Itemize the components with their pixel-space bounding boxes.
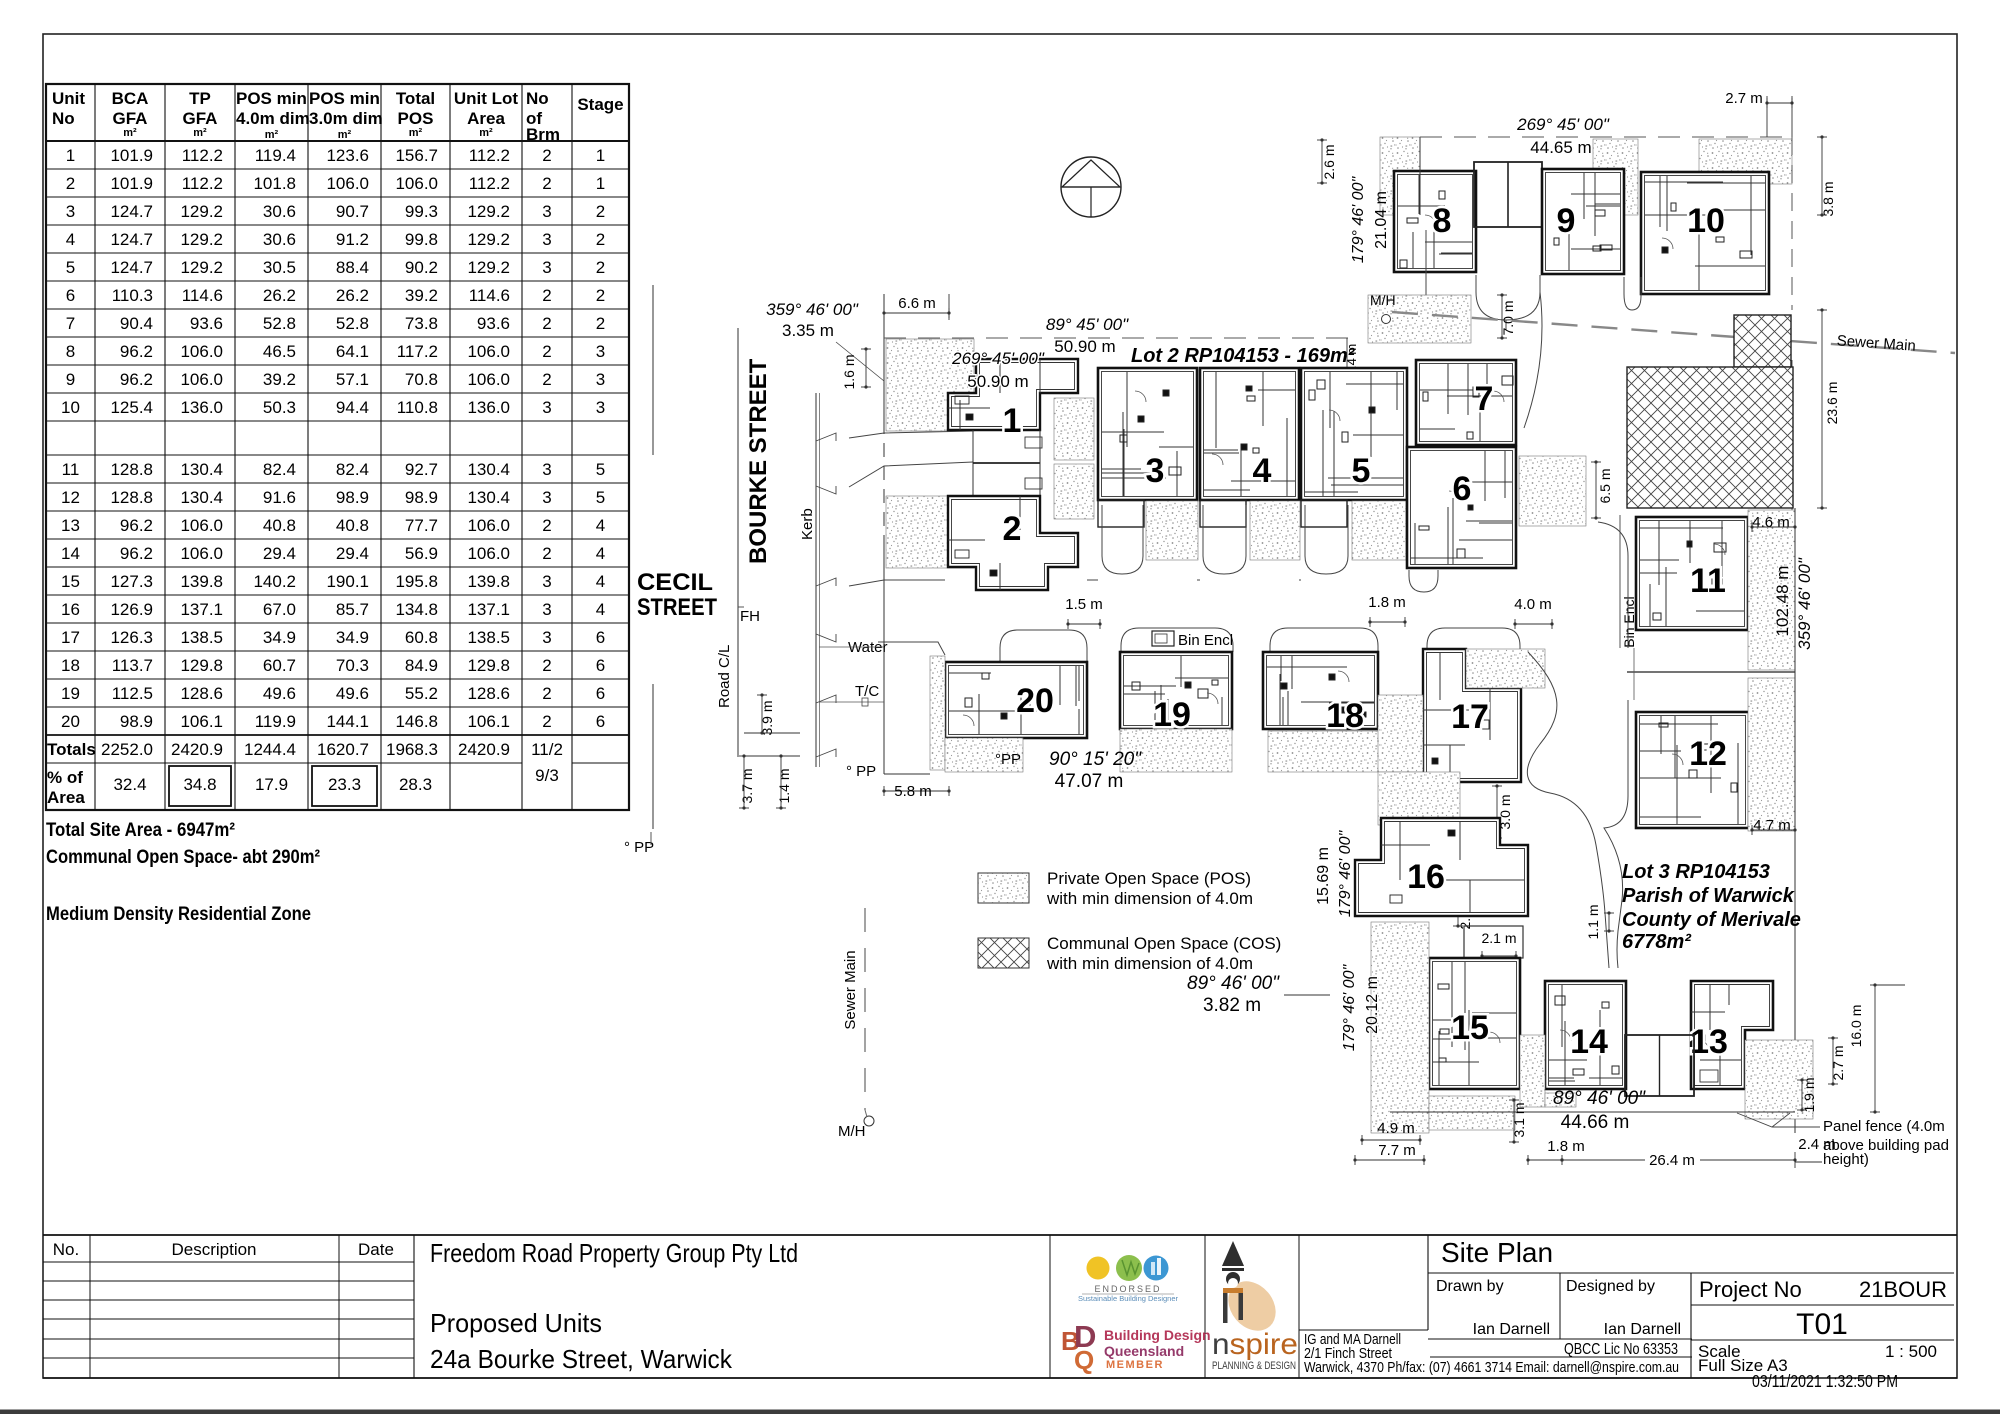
svg-text:93.6: 93.6 <box>477 314 510 333</box>
svg-text:190.1: 190.1 <box>326 572 369 591</box>
svg-text:° PP: ° PP <box>624 839 654 856</box>
svg-text:1.9 m: 1.9 m <box>1801 1077 1817 1112</box>
svg-text:13: 13 <box>61 516 80 535</box>
svg-text:QBCC Lic No 63353: QBCC Lic No 63353 <box>1564 1341 1678 1358</box>
svg-text:1.1 m: 1.1 m <box>1585 904 1601 939</box>
svg-text:with min dimension of 4.0m: with min dimension of 4.0m <box>1046 954 1253 973</box>
svg-text:26.2: 26.2 <box>336 286 369 305</box>
svg-text:101.9: 101.9 <box>110 146 153 165</box>
svg-text:14: 14 <box>1570 1023 1608 1061</box>
svg-text:° PP: ° PP <box>846 763 876 780</box>
svg-text:2: 2 <box>596 202 605 221</box>
svg-text:STREET: STREET <box>637 594 717 621</box>
svg-text:20: 20 <box>1016 682 1054 720</box>
svg-text:No: No <box>52 109 75 128</box>
svg-text:Road C/L: Road C/L <box>716 645 733 708</box>
svg-text:56.9: 56.9 <box>405 544 438 563</box>
svg-text:139.8: 139.8 <box>180 572 223 591</box>
svg-text:2: 2 <box>542 314 551 333</box>
svg-text:03/11/2021 1:32:50 PM: 03/11/2021 1:32:50 PM <box>1752 1371 1898 1391</box>
svg-text:Drawn by: Drawn by <box>1436 1278 1504 1295</box>
svg-text:5: 5 <box>596 460 605 479</box>
svg-text:128.6: 128.6 <box>467 684 510 703</box>
svg-text:67.0: 67.0 <box>263 600 296 619</box>
svg-text:2: 2 <box>596 286 605 305</box>
svg-text:126.3: 126.3 <box>110 628 153 647</box>
svg-text:21BOUR: 21BOUR <box>1859 1277 1947 1302</box>
svg-text:128.8: 128.8 <box>110 488 153 507</box>
svg-text:3.82 m: 3.82 m <box>1203 995 1261 1016</box>
svg-text:50.90 m: 50.90 m <box>967 372 1028 391</box>
svg-text:29.4: 29.4 <box>336 544 369 563</box>
svg-text:1 : 500: 1 : 500 <box>1885 1342 1937 1361</box>
svg-text:30.6: 30.6 <box>263 202 296 221</box>
svg-text:1: 1 <box>66 146 75 165</box>
svg-text:129.8: 129.8 <box>467 656 510 675</box>
svg-text:90.4: 90.4 <box>120 314 153 333</box>
svg-text:156.7: 156.7 <box>395 146 438 165</box>
svg-text:2.7 m: 2.7 m <box>1830 1045 1846 1080</box>
svg-text:60.7: 60.7 <box>263 656 296 675</box>
svg-text:90.2: 90.2 <box>405 258 438 277</box>
svg-text:4: 4 <box>596 544 605 563</box>
svg-text:3: 3 <box>542 600 551 619</box>
svg-text:Site Plan: Site Plan <box>1441 1237 1553 1268</box>
svg-text:98.9: 98.9 <box>405 488 438 507</box>
svg-text:3: 3 <box>542 258 551 277</box>
svg-text:138.5: 138.5 <box>467 628 510 647</box>
svg-text:3: 3 <box>542 488 551 507</box>
svg-text:16: 16 <box>61 600 80 619</box>
svg-text:23.6 m: 23.6 m <box>1824 382 1840 425</box>
svg-text:4.6 m: 4.6 m <box>1752 514 1790 531</box>
svg-text:Kerb: Kerb <box>799 508 816 540</box>
svg-text:m²: m² <box>338 129 352 141</box>
svg-text:Stage: Stage <box>577 95 623 114</box>
svg-text:30.5: 30.5 <box>263 258 296 277</box>
svg-text:40.8: 40.8 <box>336 516 369 535</box>
svg-text:2: 2 <box>66 174 75 193</box>
svg-text:32.4: 32.4 <box>113 775 146 794</box>
svg-text:77.7: 77.7 <box>405 516 438 535</box>
svg-text:269° 45' 00": 269° 45' 00" <box>1516 115 1610 134</box>
svg-text:129.2: 129.2 <box>180 202 223 221</box>
svg-text:m²: m² <box>123 127 137 139</box>
svg-text:2: 2 <box>542 174 551 193</box>
svg-text:nspire: nspire <box>1212 1328 1298 1361</box>
svg-text:106.0: 106.0 <box>326 174 369 193</box>
svg-text:Medium Density Residential Zon: Medium Density Residential Zone <box>46 904 311 925</box>
svg-text:Area: Area <box>47 788 85 807</box>
svg-text:7: 7 <box>66 314 75 333</box>
svg-text:Ian Darnell: Ian Darnell <box>1473 1321 1550 1338</box>
svg-text:55.2: 55.2 <box>405 684 438 703</box>
svg-text:3.1 m: 3.1 m <box>1511 1102 1527 1137</box>
svg-text:M/H: M/H <box>838 1123 866 1140</box>
svg-text:4: 4 <box>596 600 605 619</box>
svg-text:125.4: 125.4 <box>110 398 153 417</box>
svg-text:34.9: 34.9 <box>263 628 296 647</box>
svg-text:89° 46' 00": 89° 46' 00" <box>1187 973 1280 994</box>
svg-text:Lot 2 RP104153 - 169m²: Lot 2 RP104153 - 169m² <box>1131 345 1356 367</box>
svg-text:3: 3 <box>596 370 605 389</box>
svg-text:2: 2 <box>596 314 605 333</box>
svg-text:3.35 m: 3.35 m <box>782 321 834 340</box>
svg-text:Total: Total <box>396 89 435 108</box>
svg-text:3: 3 <box>596 342 605 361</box>
svg-text:91.6: 91.6 <box>263 488 296 507</box>
svg-text:128.8: 128.8 <box>110 460 153 479</box>
svg-text:106.0: 106.0 <box>395 174 438 193</box>
svg-text:96.2: 96.2 <box>120 516 153 535</box>
svg-text:2420.9: 2420.9 <box>458 740 510 759</box>
svg-text:4.7 m: 4.7 m <box>1753 817 1791 834</box>
svg-text:10: 10 <box>1687 202 1725 240</box>
svg-text:106.1: 106.1 <box>180 712 223 731</box>
svg-text:7: 7 <box>1475 380 1494 418</box>
svg-text:82.4: 82.4 <box>263 460 296 479</box>
svg-text:4.0m dim: 4.0m dim <box>236 109 310 128</box>
svg-text:% of: % of <box>47 768 83 787</box>
svg-text:16.0 m: 16.0 m <box>1848 1005 1864 1048</box>
svg-text:106.0: 106.0 <box>467 342 510 361</box>
svg-text:90° 15' 20": 90° 15' 20" <box>1049 749 1142 770</box>
svg-text:3: 3 <box>542 230 551 249</box>
svg-text:47.07 m: 47.07 m <box>1055 771 1124 792</box>
svg-text:6: 6 <box>596 684 605 703</box>
svg-text:98.9: 98.9 <box>120 712 153 731</box>
svg-text:44.65 m: 44.65 m <box>1530 138 1591 157</box>
svg-text:T/C: T/C <box>855 683 879 700</box>
svg-text:130.4: 130.4 <box>467 460 510 479</box>
svg-text:39.2: 39.2 <box>263 370 296 389</box>
svg-text:44.66 m: 44.66 m <box>1561 1112 1630 1133</box>
svg-text:2.6 m: 2.6 m <box>1321 144 1337 179</box>
svg-text:195.8: 195.8 <box>395 572 438 591</box>
svg-text:17.9: 17.9 <box>255 775 288 794</box>
svg-text:°PP: °PP <box>995 751 1021 768</box>
svg-text:5: 5 <box>1352 452 1371 490</box>
svg-text:6: 6 <box>66 286 75 305</box>
svg-text:96.2: 96.2 <box>120 342 153 361</box>
svg-text:1.4 m: 1.4 m <box>776 768 792 803</box>
svg-text:99.3: 99.3 <box>405 202 438 221</box>
svg-text:9: 9 <box>66 370 75 389</box>
svg-text:93.6: 93.6 <box>190 314 223 333</box>
svg-text:106.0: 106.0 <box>180 544 223 563</box>
svg-text:123.6: 123.6 <box>326 146 369 165</box>
svg-text:88.4: 88.4 <box>336 258 369 277</box>
svg-text:Parish of Warwick: Parish of Warwick <box>1622 885 1795 907</box>
svg-text:Description: Description <box>171 1240 256 1259</box>
svg-text:13: 13 <box>1690 1023 1728 1061</box>
svg-text:126.9: 126.9 <box>110 600 153 619</box>
svg-text:99.8: 99.8 <box>405 230 438 249</box>
svg-text:112.2: 112.2 <box>182 174 223 193</box>
svg-text:130.4: 130.4 <box>180 460 223 479</box>
svg-text:60.8: 60.8 <box>405 628 438 647</box>
svg-text:m²: m² <box>265 129 279 141</box>
svg-text:24a Bourke Street, Warwick: 24a Bourke Street, Warwick <box>430 1344 733 1374</box>
svg-text:7.7 m: 7.7 m <box>1378 1142 1416 1159</box>
svg-text:21.04 m: 21.04 m <box>1373 191 1390 249</box>
svg-text:3: 3 <box>66 202 75 221</box>
svg-text:FH: FH <box>740 608 760 625</box>
svg-text:106.0: 106.0 <box>180 342 223 361</box>
svg-text:89° 45' 00": 89° 45' 00" <box>1046 315 1129 334</box>
svg-text:1: 1 <box>596 146 605 165</box>
svg-text:136.0: 136.0 <box>467 398 510 417</box>
svg-text:101.8: 101.8 <box>253 174 296 193</box>
svg-text:50.3: 50.3 <box>263 398 296 417</box>
svg-text:136.0: 136.0 <box>180 398 223 417</box>
svg-text:23.3: 23.3 <box>328 775 361 794</box>
svg-text:Unit: Unit <box>52 89 85 108</box>
svg-text:3: 3 <box>542 398 551 417</box>
svg-text:91.2: 91.2 <box>336 230 369 249</box>
svg-text:Bin Encl: Bin Encl <box>1621 596 1637 647</box>
svg-text:9: 9 <box>1557 202 1576 240</box>
svg-text:4: 4 <box>596 516 605 535</box>
svg-text:8: 8 <box>1433 202 1452 240</box>
svg-text:with min dimension of 4.0m: with min dimension of 4.0m <box>1046 889 1253 908</box>
svg-text:3.0m dim: 3.0m dim <box>309 109 383 128</box>
svg-text:3: 3 <box>542 628 551 647</box>
svg-text:96.2: 96.2 <box>120 370 153 389</box>
svg-text:Brm: Brm <box>526 125 560 144</box>
svg-text:M/H: M/H <box>1370 292 1396 308</box>
svg-text:3: 3 <box>1146 452 1165 490</box>
svg-text:89° 46' 00": 89° 46' 00" <box>1553 1088 1646 1109</box>
svg-text:No: No <box>526 89 549 108</box>
svg-text:1.5 m: 1.5 m <box>1065 596 1103 613</box>
svg-text:POS min: POS min <box>236 89 307 108</box>
svg-text:Private Open Space (POS): Private Open Space (POS) <box>1047 869 1251 888</box>
svg-text:110.8: 110.8 <box>397 398 438 417</box>
svg-text:98.9: 98.9 <box>336 488 369 507</box>
svg-text:4.9 m: 4.9 m <box>1377 1120 1415 1137</box>
svg-text:19: 19 <box>61 684 80 703</box>
svg-text:3: 3 <box>542 202 551 221</box>
svg-text:2: 2 <box>596 258 605 277</box>
svg-text:82.4: 82.4 <box>336 460 369 479</box>
svg-text:TP: TP <box>189 89 211 108</box>
svg-text:Building Design: Building Design <box>1104 1327 1211 1343</box>
svg-text:Ian Darnell: Ian Darnell <box>1604 1321 1681 1338</box>
svg-text:18: 18 <box>61 656 80 675</box>
svg-text:5: 5 <box>596 488 605 507</box>
svg-text:1244.4: 1244.4 <box>244 740 296 759</box>
svg-text:2: 2 <box>542 342 551 361</box>
svg-text:110.3: 110.3 <box>112 286 153 305</box>
svg-text:112.2: 112.2 <box>469 146 510 165</box>
svg-text:92.7: 92.7 <box>405 460 438 479</box>
svg-text:128.6: 128.6 <box>180 684 223 703</box>
svg-text:Water: Water <box>848 639 887 656</box>
svg-text:129.2: 129.2 <box>467 258 510 277</box>
svg-text:3: 3 <box>542 460 551 479</box>
svg-text:137.1: 137.1 <box>467 600 510 619</box>
svg-text:96.2: 96.2 <box>120 544 153 563</box>
svg-text:Panel fence (4.0m: Panel fence (4.0m <box>1823 1118 1945 1135</box>
svg-text:T01: T01 <box>1796 1308 1848 1341</box>
svg-text:15: 15 <box>61 572 80 591</box>
svg-text:Totals: Totals <box>47 740 96 759</box>
svg-text:BOURKE STREET: BOURKE STREET <box>745 358 772 564</box>
svg-text:2: 2 <box>542 656 551 675</box>
svg-text:129.2: 129.2 <box>467 230 510 249</box>
svg-text:Warwick, 4370 Ph/fax: (07) 4: Warwick, 4370 Ph/fax: (07) 4661 3714 Ema… <box>1304 1359 1679 1376</box>
svg-text:4: 4 <box>1253 452 1272 490</box>
svg-text:6.5 m: 6.5 m <box>1597 468 1613 503</box>
svg-text:POS min: POS min <box>309 89 380 108</box>
svg-text:1.8 m: 1.8 m <box>1368 594 1406 611</box>
svg-text:90.7: 90.7 <box>336 202 369 221</box>
svg-text:113.7: 113.7 <box>112 656 153 675</box>
svg-text:134.8: 134.8 <box>395 600 438 619</box>
svg-text:ENDORSED: ENDORSED <box>1094 1284 1161 1294</box>
svg-text:129.2: 129.2 <box>180 258 223 277</box>
svg-text:85.7: 85.7 <box>336 600 369 619</box>
svg-text:2252.0: 2252.0 <box>101 740 153 759</box>
svg-text:GFA: GFA <box>113 109 148 128</box>
svg-text:101.9: 101.9 <box>110 174 153 193</box>
svg-text:11: 11 <box>62 460 80 479</box>
svg-text:179° 46' 00": 179° 46' 00" <box>1341 964 1358 1052</box>
svg-text:137.1: 137.1 <box>180 600 223 619</box>
svg-text:m²: m² <box>479 127 493 139</box>
svg-text:11: 11 <box>1690 562 1726 600</box>
svg-text:height): height) <box>1823 1151 1869 1168</box>
svg-text:3: 3 <box>542 572 551 591</box>
svg-text:Lot 3 RP104153: Lot 3 RP104153 <box>1622 861 1770 883</box>
svg-text:4.0 m: 4.0 m <box>1514 596 1552 613</box>
svg-text:16: 16 <box>1407 858 1445 896</box>
svg-text:6: 6 <box>596 628 605 647</box>
svg-text:POS: POS <box>398 109 434 128</box>
svg-text:114.6: 114.6 <box>469 286 510 305</box>
svg-text:Proposed Units: Proposed Units <box>430 1308 602 1338</box>
svg-text:BCA: BCA <box>112 89 149 108</box>
svg-text:12: 12 <box>61 488 80 507</box>
svg-text:40.8: 40.8 <box>263 516 296 535</box>
svg-text:140.2: 140.2 <box>253 572 296 591</box>
svg-text:49.6: 49.6 <box>263 684 296 703</box>
svg-text:2420.9: 2420.9 <box>171 740 223 759</box>
svg-text:1.8 m: 1.8 m <box>1547 1138 1585 1155</box>
svg-text:5: 5 <box>66 258 75 277</box>
svg-text:20: 20 <box>61 712 80 731</box>
svg-text:Q: Q <box>1074 1345 1094 1375</box>
svg-text:146.8: 146.8 <box>395 712 438 731</box>
svg-text:130.4: 130.4 <box>180 488 223 507</box>
svg-text:11/2: 11/2 <box>531 740 563 759</box>
svg-text:52.8: 52.8 <box>263 314 296 333</box>
svg-text:138.5: 138.5 <box>180 628 223 647</box>
svg-text:34.8: 34.8 <box>183 775 216 794</box>
svg-text:CECIL: CECIL <box>637 569 713 596</box>
svg-text:4: 4 <box>596 572 605 591</box>
svg-text:70.8: 70.8 <box>405 370 438 389</box>
svg-text:50.90 m: 50.90 m <box>1054 337 1115 356</box>
svg-text:26.2: 26.2 <box>263 286 296 305</box>
svg-text:15: 15 <box>1451 1009 1489 1047</box>
svg-text:124.7: 124.7 <box>110 230 153 249</box>
svg-text:359° 46' 00": 359° 46' 00" <box>1795 557 1814 650</box>
svg-text:2: 2 <box>542 544 551 563</box>
svg-text:29.4: 29.4 <box>263 544 296 563</box>
svg-text:Queensland: Queensland <box>1104 1343 1184 1359</box>
svg-text:Unit Lot: Unit Lot <box>454 89 519 108</box>
svg-text:49.6: 49.6 <box>336 684 369 703</box>
svg-text:6: 6 <box>596 656 605 675</box>
svg-text:139.8: 139.8 <box>467 572 510 591</box>
svg-text:3: 3 <box>596 398 605 417</box>
svg-text:17: 17 <box>61 628 80 647</box>
svg-text:26.4 m: 26.4 m <box>1649 1152 1695 1169</box>
svg-text:6: 6 <box>596 712 605 731</box>
svg-text:129.2: 129.2 <box>180 230 223 249</box>
svg-text:2: 2 <box>542 684 551 703</box>
svg-text:Communal Open Space (COS): Communal Open Space (COS) <box>1047 934 1281 953</box>
svg-text:52.8: 52.8 <box>336 314 369 333</box>
svg-text:1: 1 <box>1003 402 1022 440</box>
svg-text:MEMBER: MEMBER <box>1106 1359 1164 1371</box>
svg-text:6.6 m: 6.6 m <box>898 295 936 312</box>
svg-text:6: 6 <box>1453 470 1472 508</box>
svg-text:106.0: 106.0 <box>467 516 510 535</box>
svg-text:10: 10 <box>61 398 80 417</box>
svg-text:1: 1 <box>596 174 605 193</box>
svg-text:359° 46' 00": 359° 46' 00" <box>766 300 859 319</box>
svg-text:1968.3: 1968.3 <box>386 740 438 759</box>
svg-text:2: 2 <box>542 146 551 165</box>
svg-text:Project No: Project No <box>1699 1277 1802 1302</box>
svg-text:129.8: 129.8 <box>180 656 223 675</box>
svg-text:19: 19 <box>1153 696 1191 734</box>
svg-text:2: 2 <box>1003 510 1022 548</box>
svg-text:2: 2 <box>542 712 551 731</box>
svg-text:Designed by: Designed by <box>1566 1278 1655 1295</box>
svg-text:2: 2 <box>542 516 551 535</box>
svg-text:269° 45' 00": 269° 45' 00" <box>951 349 1045 368</box>
svg-text:119.4: 119.4 <box>255 146 296 165</box>
svg-text:4: 4 <box>66 230 75 249</box>
svg-text:102.48 m: 102.48 m <box>1773 566 1792 637</box>
svg-text:Bin Encl: Bin Encl <box>1178 632 1233 649</box>
svg-text:106.0: 106.0 <box>467 544 510 563</box>
svg-text:112.5: 112.5 <box>112 684 153 703</box>
svg-text:57.1: 57.1 <box>336 370 369 389</box>
svg-text:Sewer Main: Sewer Main <box>842 950 859 1029</box>
svg-text:2: 2 <box>542 370 551 389</box>
svg-text:3.9 m: 3.9 m <box>759 700 775 735</box>
svg-text:17: 17 <box>1451 698 1489 736</box>
svg-text:18: 18 <box>1326 697 1364 735</box>
svg-text:114.6: 114.6 <box>182 286 223 305</box>
svg-text:No.: No. <box>53 1240 79 1259</box>
svg-text:112.2: 112.2 <box>182 146 223 165</box>
svg-text:84.9: 84.9 <box>405 656 438 675</box>
svg-text:14: 14 <box>61 544 80 563</box>
svg-text:73.8: 73.8 <box>405 314 438 333</box>
svg-text:144.1: 144.1 <box>326 712 369 731</box>
svg-text:Communal Open Space- abt 290m²: Communal Open Space- abt 290m² <box>46 847 320 868</box>
svg-text:130.4: 130.4 <box>467 488 510 507</box>
svg-text:106.1: 106.1 <box>467 712 510 731</box>
svg-text:70.3: 70.3 <box>336 656 369 675</box>
svg-text:34.9: 34.9 <box>336 628 369 647</box>
